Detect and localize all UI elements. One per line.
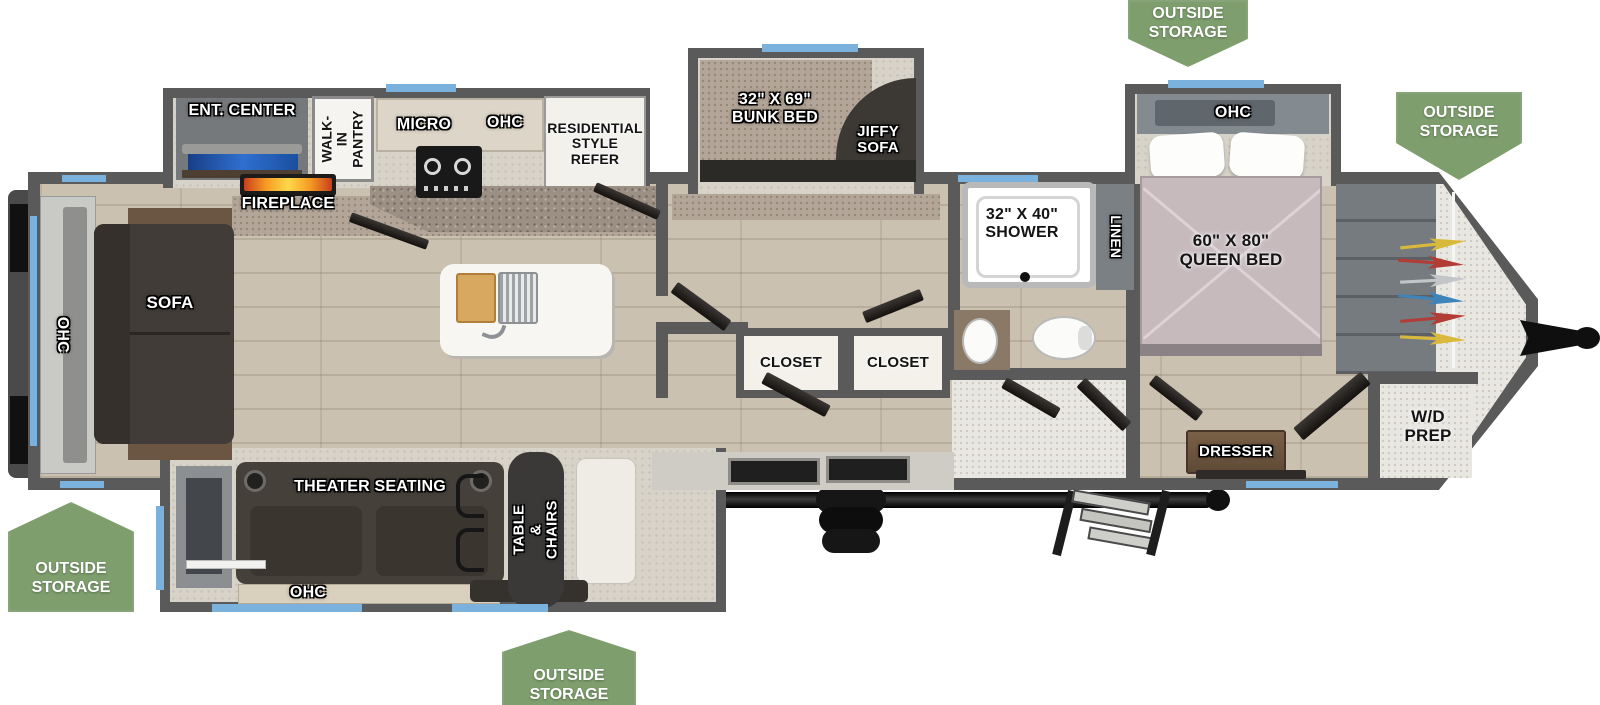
bed-footboard: [1140, 344, 1322, 356]
outside-storage-badge-top-label: OUTSIDE STORAGE: [1149, 5, 1228, 43]
sofa-label: SOFA: [118, 292, 222, 314]
toilet: [1032, 316, 1096, 360]
exterior-hatch-left: [728, 458, 820, 485]
dresser-tv: [1196, 470, 1306, 479]
pillow-right: [1229, 131, 1306, 180]
outside-storage-badge-bottom-label: OUTSIDE STORAGE: [530, 667, 609, 705]
theater-ohc-label: OHC: [238, 582, 378, 604]
theater-seat-left: [250, 506, 362, 576]
walk-in-pantry-label: WALK-IN PANTRY: [320, 110, 366, 167]
kitchen-island: [440, 264, 612, 356]
sofa-seam: [130, 332, 230, 335]
window-strip-rear-bottom: [60, 481, 104, 488]
micro-label: MICRO: [382, 114, 466, 136]
rv-floorplan-diagram: ENT. CENTER WALK-IN PANTRY MICRO OHC RES…: [0, 0, 1600, 705]
window-strip-kitchen-slide: [386, 84, 456, 92]
refrigerator-label: RESIDENTIAL STYLE REFER: [544, 104, 646, 184]
window-strip-theater-bottom1: [212, 604, 362, 612]
stove-knobs: [424, 186, 474, 191]
ent-center-shelf: [182, 144, 302, 154]
window-strip-bath-top: [958, 175, 1038, 182]
entry-steps: [1058, 488, 1168, 560]
theater-tv-cabinet: [176, 466, 232, 588]
dinette-table: TABLE & CHAIRS: [508, 452, 564, 608]
stove-cooktop: [416, 146, 482, 198]
fireplace-label: FIREPLACE: [232, 194, 344, 214]
sofa: [94, 224, 234, 444]
wd-wall-top: [1368, 372, 1478, 384]
walk-in-pantry: WALK-IN PANTRY: [312, 96, 374, 182]
cutting-board: [456, 273, 496, 323]
sofa-backrest: [94, 224, 130, 444]
outside-storage-badge-front: OUTSIDE STORAGE: [1396, 92, 1522, 180]
tv-screen: [188, 154, 298, 170]
linen-label: LINEN: [1107, 215, 1122, 258]
window-strip-bedroom-bottom: [1246, 481, 1338, 488]
wardrobe: [1336, 184, 1436, 374]
bedroom-ohc-label: OHC: [1137, 102, 1329, 124]
bunk-bed-label: 32" X 69" BUNK BED: [700, 86, 850, 132]
window-strip-theater-left: [156, 506, 164, 590]
rear-window-strip: [30, 216, 37, 446]
fireplace-flame: [244, 178, 332, 191]
rear-ohc-label-text: OHC: [53, 317, 71, 353]
bunkroom-carpet: [672, 194, 940, 220]
queen-bed-label: 60" X 80" QUEEN BED: [1150, 228, 1312, 274]
theater-seating-label: THEATER SEATING: [246, 476, 494, 498]
wd-prep-label: W/D PREP: [1384, 402, 1472, 452]
outside-storage-badge-front-label: OUTSIDE STORAGE: [1420, 104, 1499, 142]
hitch-coupler: [1520, 320, 1580, 356]
toilet-tank: [1078, 326, 1092, 350]
burner-right: [454, 158, 471, 175]
shower-label: 32" X 40" SHOWER: [962, 200, 1082, 248]
outside-storage-badge-top: OUTSIDE STORAGE: [1128, 0, 1248, 67]
outside-storage-badge-bottom: OUTSIDE STORAGE: [502, 630, 636, 705]
hitch-knob: [1574, 327, 1600, 349]
bunk-seat-base: [700, 160, 916, 182]
island-sink: [498, 272, 538, 324]
outside-storage-badge-rear: OUTSIDE STORAGE: [8, 502, 134, 612]
window-strip-bedroom-slide: [1168, 80, 1264, 88]
bunkroom-wall-left-upper: [656, 184, 668, 296]
ent-center-label: ENT. CENTER: [176, 100, 308, 122]
tank-stack: [816, 487, 886, 553]
wd-wall-left: [1368, 372, 1380, 480]
linen-cabinet: LINEN: [1096, 184, 1134, 290]
tank-3: [822, 529, 880, 553]
burner-left: [424, 158, 441, 175]
window-strip-bunk-slide: [762, 44, 858, 52]
bunkroom-wall-left-lower: [656, 334, 668, 398]
chassis-bar-endcap: [1206, 489, 1230, 511]
bath-sink: [962, 318, 998, 364]
theater-shelf: [186, 560, 266, 569]
dinette-chair-bottom: [456, 528, 484, 572]
closet-left-label: CLOSET: [744, 350, 838, 376]
rear-ohc-label: OHC: [40, 300, 84, 370]
fireplace: [240, 174, 336, 196]
bunkroom-wall-bottom: [656, 322, 748, 334]
closet-right-label: CLOSET: [854, 350, 942, 376]
exterior-hatch-right: [826, 456, 910, 483]
jiffy-sofa-label: JIFFY SOFA: [840, 118, 916, 162]
table-chairs-label: TABLE & CHAIRS: [511, 501, 561, 560]
dresser-label: DRESSER: [1186, 440, 1286, 464]
window-strip-theater-bottom2: [452, 604, 548, 612]
shower-drain: [1020, 272, 1030, 282]
kitchen-ohc-label: OHC: [470, 112, 540, 134]
pillow-left: [1149, 131, 1226, 180]
dinette-bench: [576, 458, 636, 584]
outside-storage-badge-rear-label: OUTSIDE STORAGE: [32, 560, 111, 598]
window-strip-rear-top: [62, 175, 106, 182]
